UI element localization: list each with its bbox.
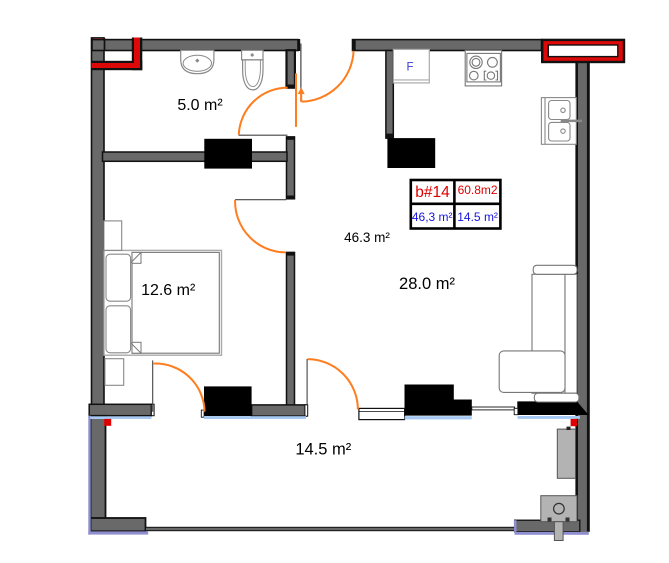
svg-text:28.0 m²: 28.0 m² — [399, 275, 455, 293]
svg-text:14.5 m²: 14.5 m² — [457, 210, 498, 224]
svg-text:46,3 m²: 46,3 m² — [412, 210, 453, 224]
svg-text:5.0 m²: 5.0 m² — [177, 97, 223, 114]
svg-text:F: F — [406, 62, 413, 74]
svg-text:12.6 m²: 12.6 m² — [141, 282, 196, 299]
svg-text:14.5 m²: 14.5 m² — [295, 441, 351, 459]
svg-text:b#14: b#14 — [415, 184, 450, 201]
svg-text:60.8m2: 60.8m2 — [458, 183, 498, 197]
svg-text:46.3 m²: 46.3 m² — [344, 230, 390, 245]
